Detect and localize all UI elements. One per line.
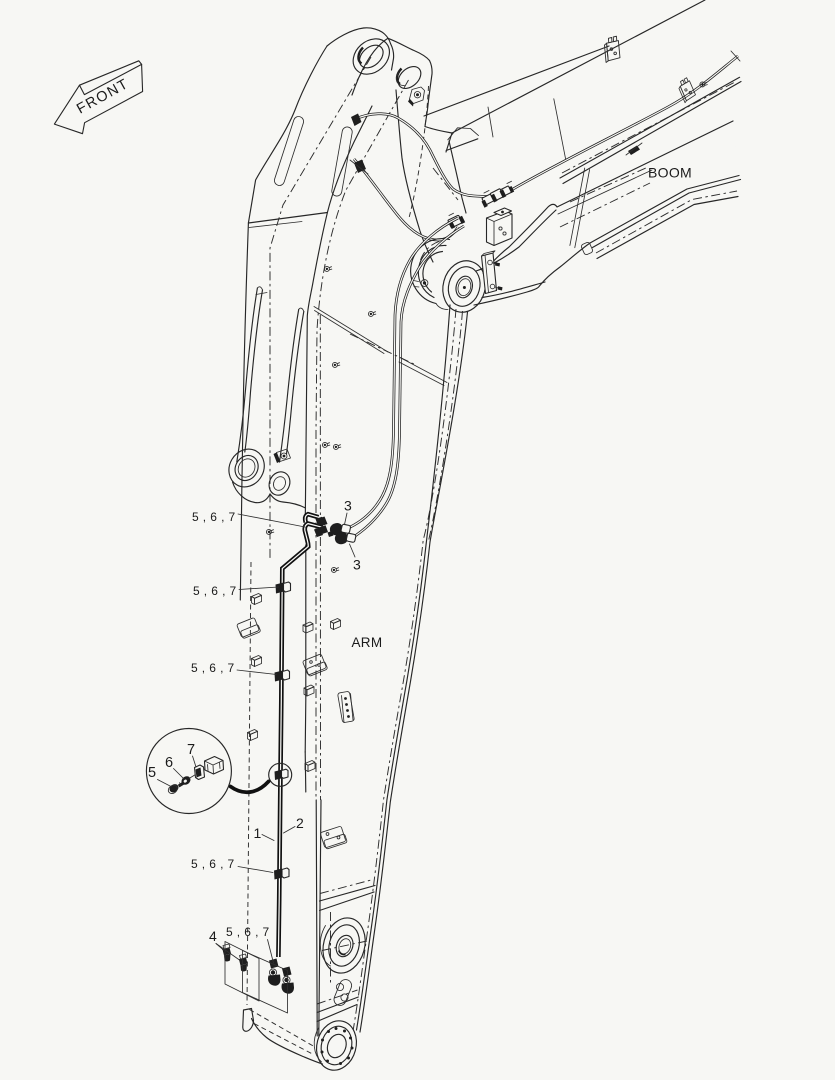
- svg-text:7: 7: [187, 742, 195, 758]
- svg-text:3: 3: [353, 557, 361, 573]
- svg-text:6: 6: [165, 755, 173, 771]
- svg-text:5 , 6 , 7: 5 , 6 , 7: [193, 584, 237, 598]
- svg-text:5 , 6 , 7: 5 , 6 , 7: [191, 857, 235, 871]
- svg-text:1: 1: [254, 825, 262, 841]
- svg-text:BOOM: BOOM: [648, 165, 692, 181]
- svg-text:5: 5: [148, 765, 156, 781]
- svg-text:2: 2: [296, 815, 304, 831]
- svg-text:5 , 6 , 7: 5 , 6 , 7: [192, 510, 236, 524]
- svg-text:5 , 6 , 7: 5 , 6 , 7: [226, 925, 270, 939]
- svg-text:ARM: ARM: [352, 635, 383, 650]
- svg-text:5 , 6 , 7: 5 , 6 , 7: [191, 661, 235, 675]
- svg-text:3: 3: [344, 498, 352, 514]
- svg-text:4: 4: [209, 928, 217, 944]
